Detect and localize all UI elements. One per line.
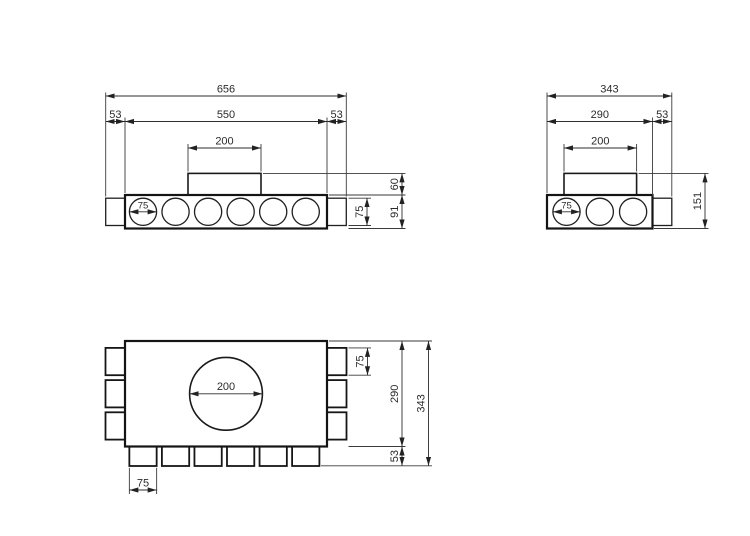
dim-text-plan-side-port-width: 75 xyxy=(355,355,367,367)
dim-text-plan-bottom-port-width: 75 xyxy=(137,477,149,489)
dim-text-plan-body-depth: 290 xyxy=(389,385,401,403)
plan-bottom-port-5 xyxy=(260,447,287,467)
plan-bottom-port-2 xyxy=(162,447,189,467)
plan-bottom-port-1 xyxy=(129,447,156,467)
plan-right-port-1 xyxy=(327,348,347,375)
dim-text-plan-spigot-diameter: 200 xyxy=(217,381,235,393)
dim-text-front-spigot-width: 200 xyxy=(215,136,233,148)
drawing-page: 656 53 550 53 200 60 91 75 75 343 xyxy=(0,0,750,536)
dim-text-side-spigot-width: 200 xyxy=(591,136,609,148)
dim-text-front-left-end: 53 xyxy=(109,109,121,121)
dim-text-front-end-cap-height: 75 xyxy=(354,206,366,218)
front-port-circle-5 xyxy=(260,198,287,225)
dim-text-plan-overall-depth: 343 xyxy=(416,394,428,412)
dim-text-front-body-width: 550 xyxy=(217,109,235,121)
dim-text-front-body-height: 91 xyxy=(389,206,401,218)
technical-drawing-canvas: 656 53 550 53 200 60 91 75 75 343 xyxy=(0,0,750,536)
front-top-spigot xyxy=(188,173,261,195)
dim-text-side-overall-width: 343 xyxy=(600,84,618,96)
plan-bottom-port-3 xyxy=(194,447,221,467)
plan-left-port-3 xyxy=(106,412,126,439)
plan-right-port-3 xyxy=(327,412,347,439)
front-port-circle-6 xyxy=(292,198,319,225)
side-port-circle-3 xyxy=(620,198,647,225)
dim-text-front-spigot-height: 60 xyxy=(389,178,401,190)
plan-bottom-port-4 xyxy=(227,447,254,467)
plan-left-port-2 xyxy=(106,380,126,407)
front-right-end-cap xyxy=(327,198,346,225)
front-port-circle-2 xyxy=(162,198,189,225)
dim-text-side-overall-height: 151 xyxy=(692,192,704,210)
dim-text-front-overall-width: 656 xyxy=(217,84,235,96)
front-view: 656 53 550 53 200 60 91 75 75 xyxy=(106,84,406,229)
dim-text-side-end-width: 53 xyxy=(656,109,668,121)
front-port-circle-3 xyxy=(195,198,222,225)
plan-left-port-1 xyxy=(106,348,126,375)
dim-text-front-port-diameter: 75 xyxy=(138,200,149,211)
plan-bottom-port-6 xyxy=(292,447,319,467)
side-top-spigot xyxy=(564,173,637,195)
dim-text-plan-bottom-port-depth: 53 xyxy=(389,450,401,462)
side-view: 343 290 53 200 151 75 xyxy=(547,84,709,229)
plan-right-port-2 xyxy=(327,380,347,407)
plan-view: 75 290 53 343 75 200 xyxy=(106,341,433,494)
front-left-end-cap xyxy=(106,198,125,225)
side-port-circle-2 xyxy=(586,198,613,225)
dim-text-side-body-width: 290 xyxy=(591,109,609,121)
side-end-cap xyxy=(653,198,672,225)
dim-text-front-right-end: 53 xyxy=(330,109,342,121)
dim-text-side-port-diameter: 75 xyxy=(561,200,572,211)
front-port-circle-4 xyxy=(227,198,254,225)
